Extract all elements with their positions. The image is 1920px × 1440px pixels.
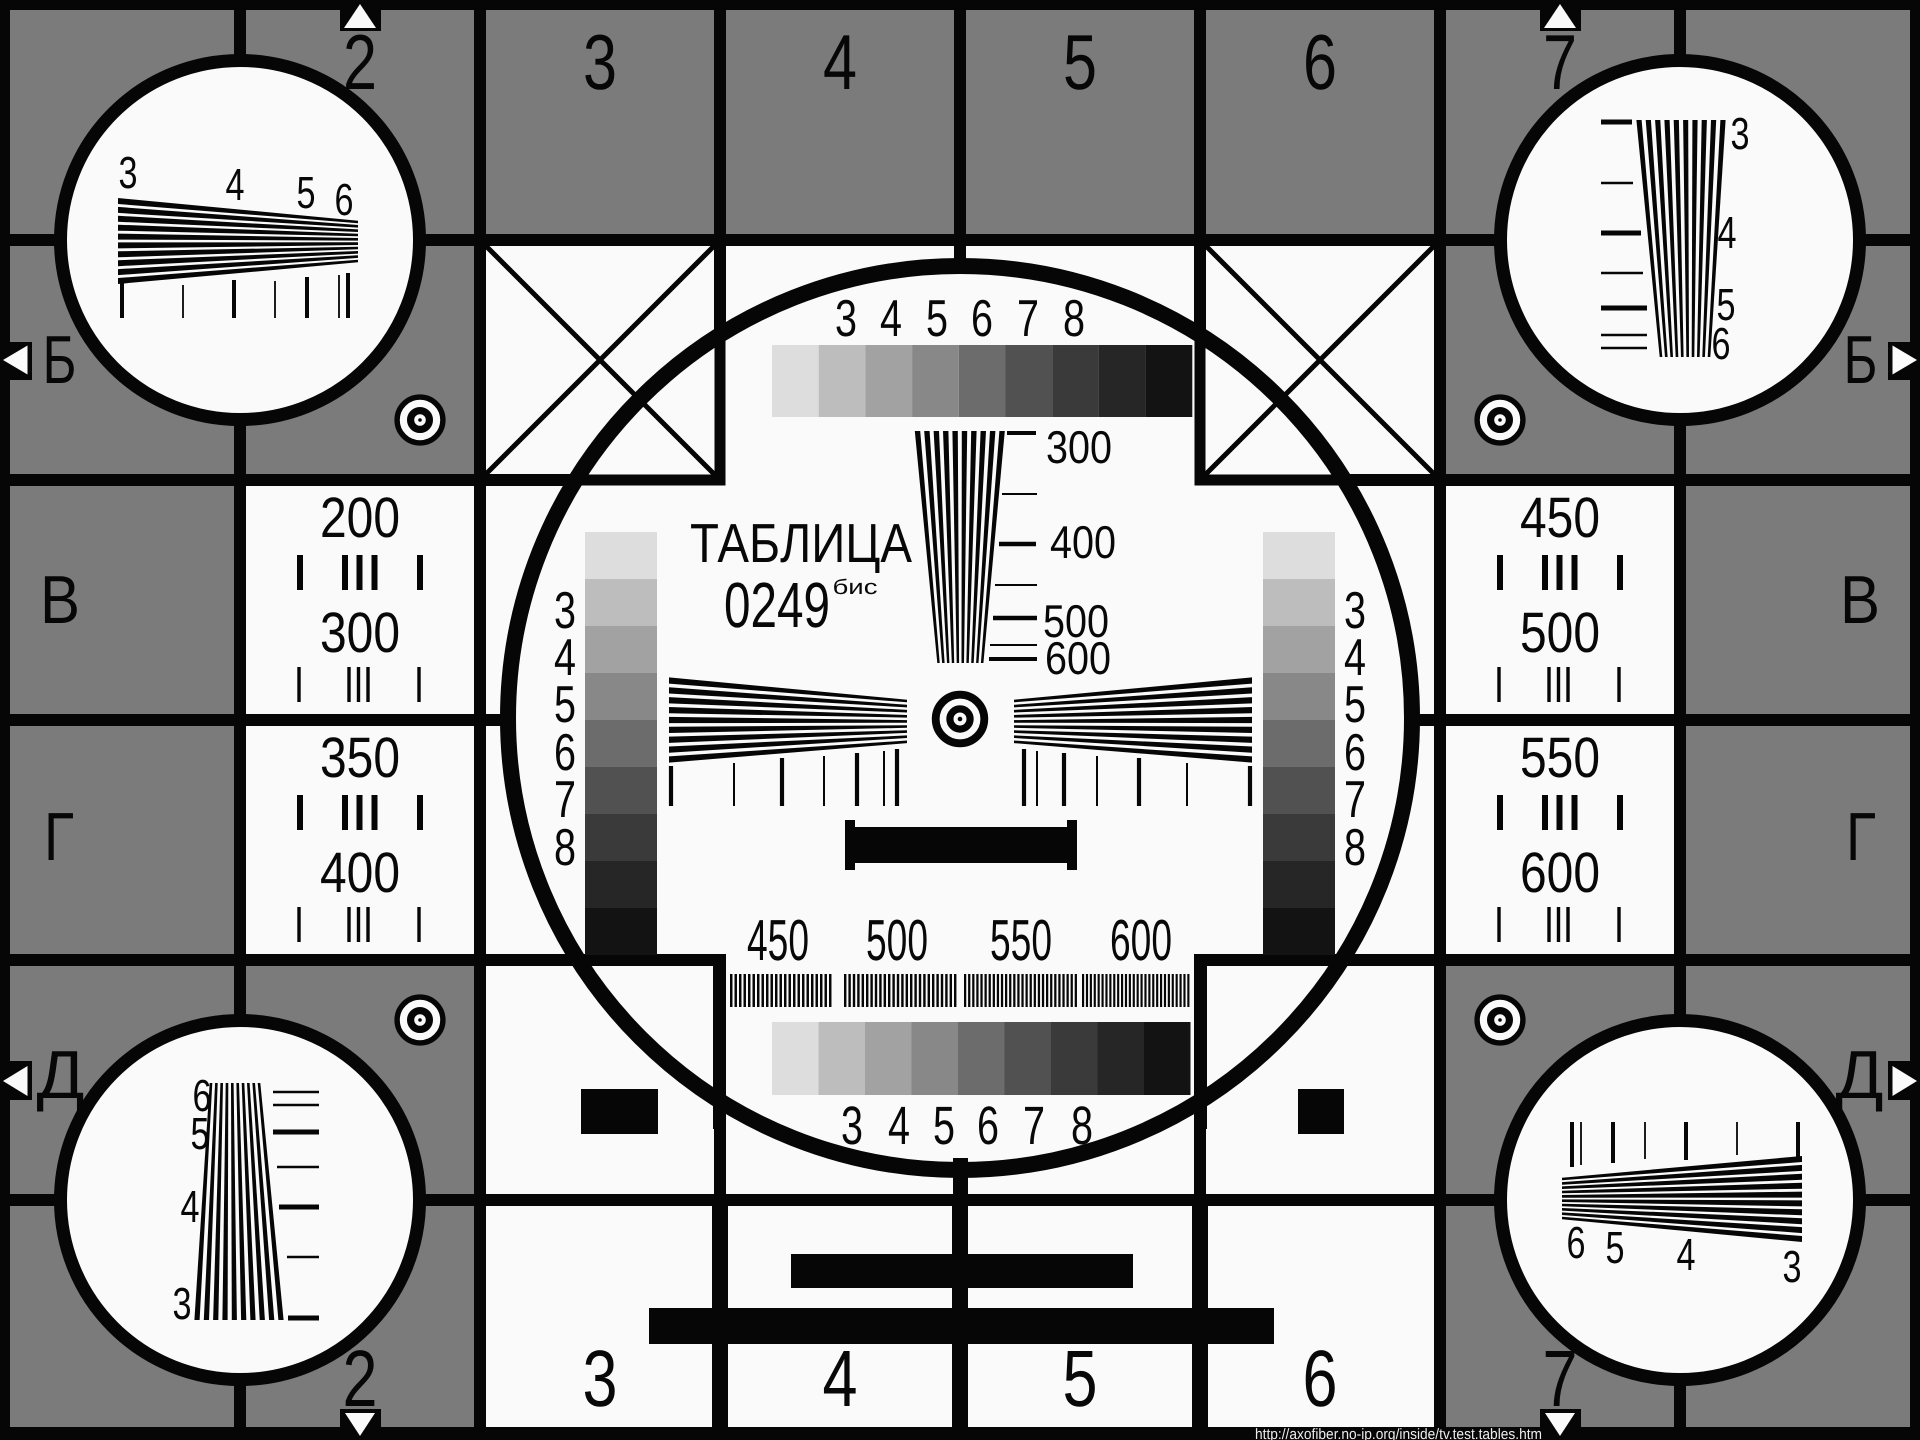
svg-text:3: 3 [583, 18, 617, 106]
svg-text:3: 3 [1783, 1241, 1802, 1292]
svg-text:450: 450 [747, 908, 809, 973]
svg-text:5: 5 [1606, 1222, 1625, 1273]
svg-text:7: 7 [1017, 290, 1039, 348]
svg-text:2: 2 [343, 18, 377, 106]
svg-text:400: 400 [320, 841, 400, 905]
svg-text:3: 3 [1731, 108, 1750, 159]
svg-text:550: 550 [1520, 726, 1600, 790]
svg-text:Д: Д [1836, 1037, 1884, 1113]
svg-text:http://axofiber.no-ip.org/insi: http://axofiber.no-ip.org/inside/tv.test… [1255, 1426, 1542, 1440]
svg-text:500: 500 [1520, 601, 1600, 665]
svg-text:3: 3 [841, 1096, 863, 1156]
svg-text:400: 400 [1050, 516, 1116, 568]
svg-text:5: 5 [1063, 1334, 1098, 1423]
svg-text:8: 8 [1071, 1096, 1093, 1156]
svg-text:6: 6 [1712, 318, 1731, 369]
svg-text:Д: Д [37, 1037, 85, 1113]
svg-text:В: В [40, 562, 80, 638]
svg-text:5: 5 [191, 1108, 210, 1159]
svg-text:4: 4 [1718, 207, 1737, 258]
svg-text:В: В [1840, 562, 1880, 638]
svg-text:550: 550 [990, 908, 1052, 973]
svg-text:6: 6 [335, 174, 354, 225]
svg-text:Б: Б [43, 322, 77, 398]
svg-text:350: 350 [320, 726, 400, 790]
svg-text:5: 5 [1063, 18, 1097, 106]
svg-text:600: 600 [1045, 632, 1111, 684]
svg-text:Б: Б [1844, 322, 1878, 398]
svg-text:4: 4 [823, 18, 857, 106]
svg-text:3: 3 [583, 1334, 618, 1423]
svg-text:5: 5 [933, 1096, 955, 1156]
svg-text:500: 500 [866, 908, 928, 973]
svg-text:Г: Г [1846, 799, 1876, 875]
svg-text:8: 8 [554, 819, 576, 877]
svg-text:3: 3 [173, 1278, 192, 1329]
svg-text:4: 4 [880, 290, 902, 348]
svg-text:бис: бис [833, 576, 878, 599]
svg-text:5: 5 [297, 167, 316, 218]
svg-text:3: 3 [119, 147, 138, 198]
svg-text:7: 7 [1543, 18, 1577, 106]
svg-text:7: 7 [1543, 1334, 1578, 1423]
svg-text:4: 4 [823, 1334, 858, 1423]
svg-text:3: 3 [835, 290, 857, 348]
svg-text:0249: 0249 [724, 569, 830, 641]
svg-text:4: 4 [181, 1181, 200, 1232]
svg-text:ТАБЛИЦА: ТАБЛИЦА [690, 512, 912, 574]
svg-text:6: 6 [1303, 18, 1337, 106]
svg-text:4: 4 [226, 159, 245, 210]
svg-text:8: 8 [1344, 819, 1366, 877]
svg-text:8: 8 [1063, 290, 1085, 348]
svg-text:5: 5 [926, 290, 948, 348]
svg-text:300: 300 [1046, 421, 1112, 473]
svg-text:600: 600 [1110, 908, 1172, 973]
svg-text:6: 6 [971, 290, 993, 348]
svg-text:6: 6 [1303, 1334, 1338, 1423]
svg-text:Г: Г [44, 799, 74, 875]
svg-text:4: 4 [888, 1096, 910, 1156]
svg-text:4: 4 [1677, 1229, 1696, 1280]
svg-text:200: 200 [320, 486, 400, 550]
svg-text:6: 6 [1567, 1217, 1586, 1268]
svg-text:7: 7 [1023, 1096, 1045, 1156]
svg-text:6: 6 [977, 1096, 999, 1156]
svg-text:600: 600 [1520, 841, 1600, 905]
svg-text:2: 2 [343, 1334, 378, 1423]
svg-text:450: 450 [1520, 486, 1600, 550]
svg-text:300: 300 [320, 601, 400, 665]
